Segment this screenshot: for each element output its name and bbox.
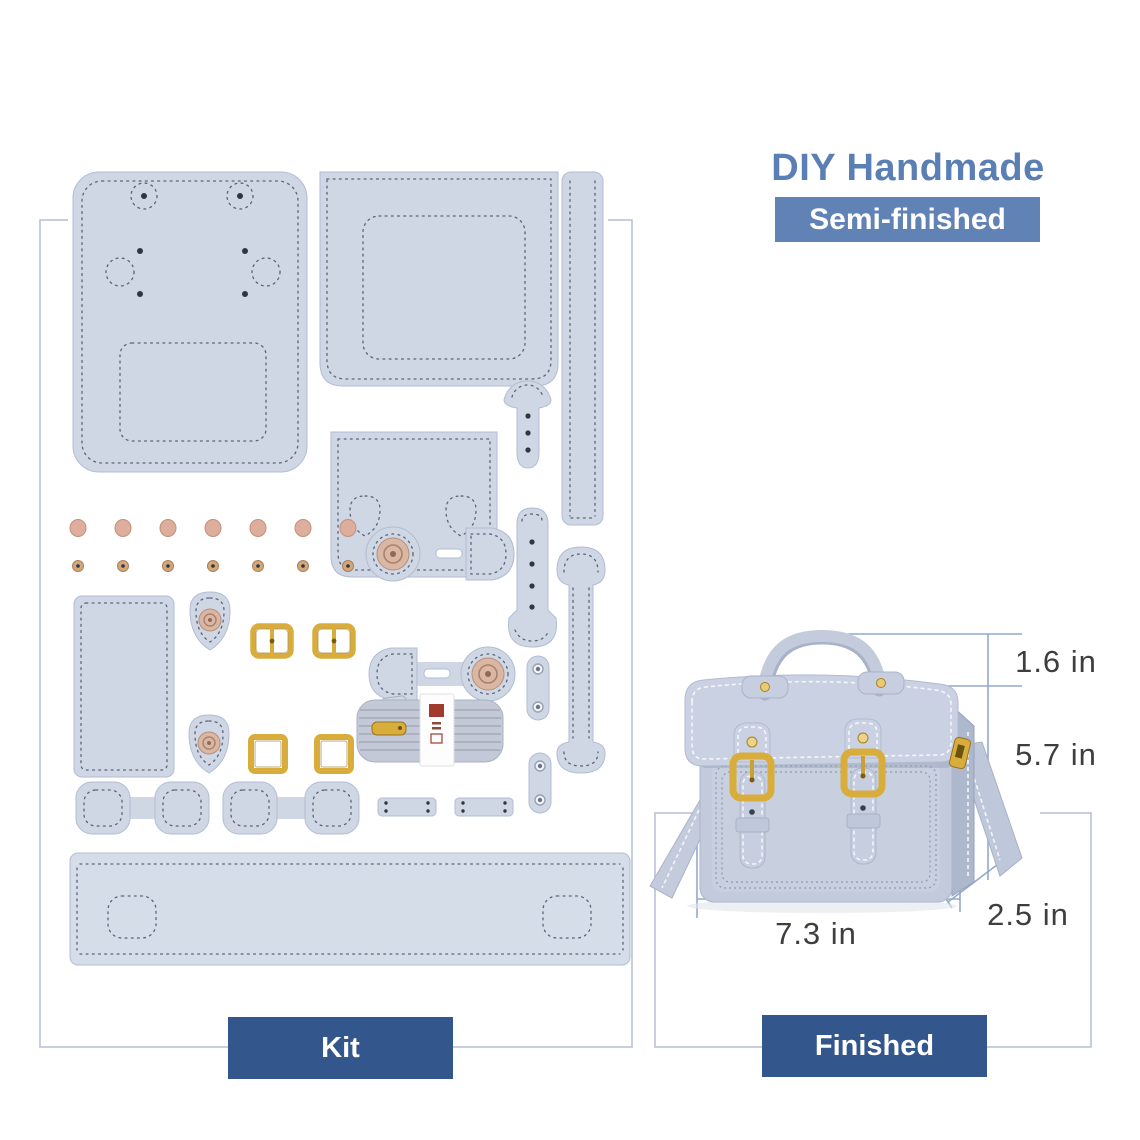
strap-paper-band	[420, 694, 454, 766]
dimension-handle-height: 1.6 in	[1008, 644, 1104, 680]
kit-piece-shield-snap-tab-2	[189, 715, 229, 773]
kit-square-ring-2	[317, 737, 351, 771]
bag-handle-anchor-left	[742, 676, 788, 698]
kit-piece-hinge-tab-2	[223, 782, 359, 834]
dimension-bag-width: 7.3 in	[768, 916, 864, 952]
dimension-bag-height: 5.7 in	[1008, 737, 1104, 773]
kit-square-ring-1	[251, 737, 285, 771]
kit-piece-small-tab-2	[455, 798, 513, 816]
kit-piece-hinge-tab-1	[76, 782, 209, 834]
finished-section-label: Finished	[762, 1015, 987, 1077]
product-listing-image: DIY Handmade Semi-finished Kit Finished …	[0, 0, 1140, 1140]
page-title: DIY Handmade	[770, 147, 1046, 189]
kit-buckle-2	[315, 626, 353, 656]
kit-piece-connector-link-1	[527, 656, 549, 720]
kit-piece-flap-panel	[320, 172, 558, 386]
kit-rivet-caps	[70, 520, 356, 537]
kit-piece-keeper-tab-bottom	[508, 508, 556, 647]
kit-piece-handle-strap	[557, 547, 605, 773]
kit-piece-back-panel	[73, 172, 307, 472]
kit-piece-gusset-panel	[74, 596, 174, 777]
kit-piece-snap-strap-2	[369, 647, 515, 701]
bag-handle-anchor-right	[858, 672, 904, 694]
kit-buckle-1	[253, 626, 291, 656]
kit-shoulder-strap-roll	[357, 694, 503, 766]
kit-piece-small-tab-1	[378, 798, 436, 816]
kit-rivet-washers	[73, 561, 354, 572]
dimension-bag-depth: 2.5 in	[982, 897, 1074, 933]
kit-section-label: Kit	[228, 1017, 453, 1079]
kit-piece-side-strap	[562, 172, 603, 525]
kit-piece-bottom-strip	[70, 853, 630, 965]
semi-finished-badge: Semi-finished	[775, 197, 1040, 242]
kit-piece-connector-link-2	[529, 753, 551, 813]
kit-piece-shield-snap-tab-1	[190, 592, 230, 650]
